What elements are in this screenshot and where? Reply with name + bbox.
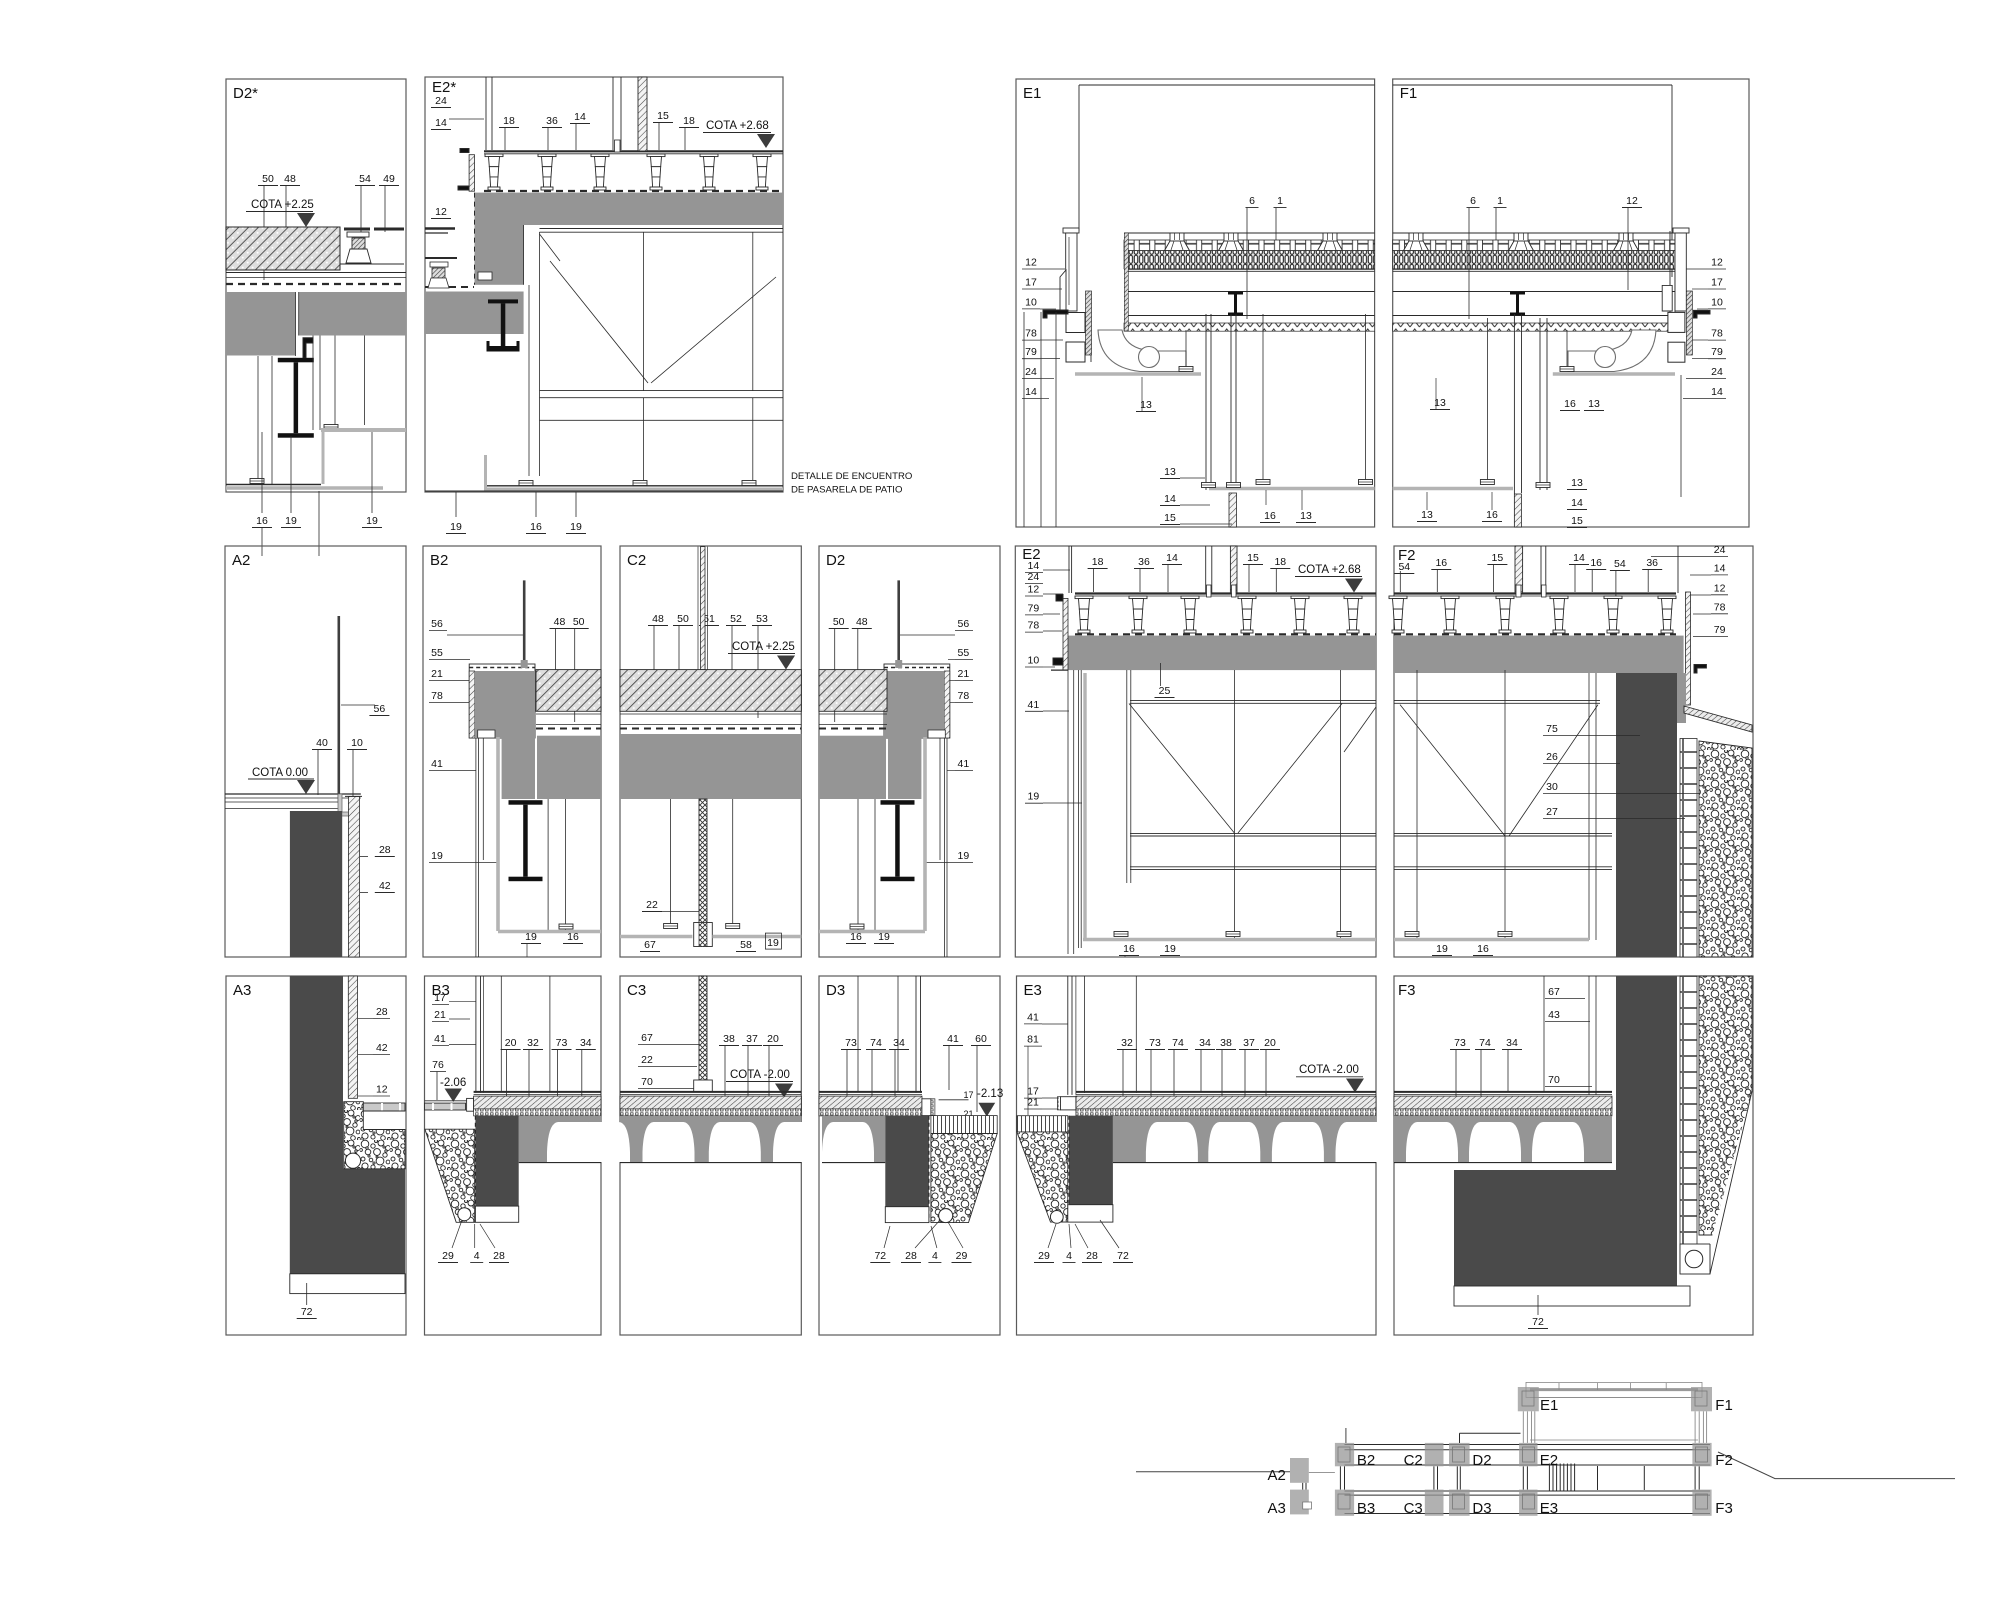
svg-text:36: 36 bbox=[546, 115, 558, 127]
svg-text:17: 17 bbox=[434, 992, 446, 1004]
svg-text:50: 50 bbox=[573, 616, 585, 628]
svg-text:COTA +2.68: COTA +2.68 bbox=[1298, 564, 1361, 576]
svg-text:19: 19 bbox=[366, 515, 378, 527]
svg-text:18: 18 bbox=[503, 115, 515, 127]
svg-text:37: 37 bbox=[746, 1033, 758, 1045]
svg-text:COTA +2.68: COTA +2.68 bbox=[706, 120, 769, 132]
svg-text:E1: E1 bbox=[1023, 85, 1041, 102]
svg-text:D2: D2 bbox=[826, 552, 845, 569]
svg-text:C3: C3 bbox=[627, 982, 646, 999]
svg-text:78: 78 bbox=[1714, 601, 1726, 613]
svg-text:10: 10 bbox=[1025, 296, 1037, 308]
svg-text:12: 12 bbox=[376, 1084, 388, 1096]
svg-text:37: 37 bbox=[1243, 1037, 1255, 1049]
svg-text:C2: C2 bbox=[627, 552, 646, 569]
svg-text:29: 29 bbox=[442, 1250, 454, 1262]
svg-text:29: 29 bbox=[1038, 1250, 1050, 1262]
svg-text:A2: A2 bbox=[232, 552, 250, 569]
svg-text:18: 18 bbox=[1274, 556, 1286, 568]
svg-text:E3: E3 bbox=[1540, 1500, 1558, 1517]
svg-text:54: 54 bbox=[1614, 558, 1626, 570]
svg-text:73: 73 bbox=[556, 1037, 568, 1049]
svg-text:41: 41 bbox=[1027, 1011, 1039, 1023]
svg-text:27: 27 bbox=[1546, 806, 1558, 818]
svg-text:24: 24 bbox=[1714, 544, 1726, 556]
svg-text:19: 19 bbox=[431, 850, 443, 862]
svg-text:67: 67 bbox=[1548, 986, 1560, 998]
svg-text:32: 32 bbox=[1121, 1037, 1133, 1049]
svg-text:36: 36 bbox=[1646, 557, 1658, 569]
svg-text:55: 55 bbox=[431, 647, 443, 659]
svg-text:10: 10 bbox=[351, 737, 363, 749]
svg-text:19: 19 bbox=[525, 931, 537, 943]
svg-text:B2: B2 bbox=[430, 552, 448, 569]
svg-text:75: 75 bbox=[1546, 723, 1558, 735]
svg-text:19: 19 bbox=[570, 521, 582, 533]
svg-text:36: 36 bbox=[1138, 556, 1150, 568]
svg-text:42: 42 bbox=[376, 1042, 388, 1054]
svg-text:21: 21 bbox=[434, 1009, 446, 1021]
svg-text:D2: D2 bbox=[1472, 1452, 1491, 1469]
svg-text:67: 67 bbox=[644, 939, 656, 951]
svg-text:29: 29 bbox=[956, 1250, 968, 1262]
svg-text:78: 78 bbox=[431, 690, 443, 702]
svg-text:32: 32 bbox=[527, 1037, 539, 1049]
svg-text:4: 4 bbox=[474, 1250, 480, 1262]
svg-text:38: 38 bbox=[1220, 1037, 1232, 1049]
svg-text:56: 56 bbox=[958, 618, 970, 630]
svg-text:13: 13 bbox=[1421, 509, 1433, 521]
svg-text:17: 17 bbox=[1711, 277, 1723, 289]
svg-text:12: 12 bbox=[1711, 257, 1723, 269]
svg-text:19: 19 bbox=[878, 931, 890, 943]
svg-text:-2.06: -2.06 bbox=[440, 1077, 466, 1089]
svg-text:-2.13: -2.13 bbox=[977, 1088, 1003, 1100]
svg-text:F3: F3 bbox=[1398, 982, 1416, 999]
svg-text:14: 14 bbox=[1571, 497, 1583, 509]
svg-text:15: 15 bbox=[1492, 552, 1504, 564]
svg-text:E1: E1 bbox=[1540, 1397, 1558, 1414]
svg-text:COTA +2.25: COTA +2.25 bbox=[732, 641, 795, 653]
svg-text:53: 53 bbox=[756, 613, 768, 625]
svg-text:52: 52 bbox=[730, 613, 742, 625]
svg-text:15: 15 bbox=[1571, 515, 1583, 527]
svg-text:38: 38 bbox=[723, 1033, 735, 1045]
svg-text:15: 15 bbox=[1247, 552, 1259, 564]
svg-text:78: 78 bbox=[1028, 620, 1040, 632]
svg-text:24: 24 bbox=[1711, 366, 1723, 378]
svg-text:34: 34 bbox=[580, 1037, 592, 1049]
svg-text:12: 12 bbox=[1626, 195, 1638, 207]
svg-text:4: 4 bbox=[1066, 1250, 1072, 1262]
svg-text:79: 79 bbox=[1714, 624, 1726, 636]
svg-text:19: 19 bbox=[1436, 943, 1448, 955]
svg-text:72: 72 bbox=[874, 1250, 886, 1262]
svg-text:42: 42 bbox=[379, 880, 391, 892]
svg-text:26: 26 bbox=[1546, 751, 1558, 763]
svg-text:E3: E3 bbox=[1024, 982, 1042, 999]
svg-text:56: 56 bbox=[431, 618, 443, 630]
svg-text:41: 41 bbox=[434, 1033, 446, 1045]
svg-text:DE PASARELA DE PATIO: DE PASARELA DE PATIO bbox=[791, 485, 902, 496]
svg-text:13: 13 bbox=[1571, 477, 1583, 489]
svg-text:E2*: E2* bbox=[432, 79, 456, 96]
svg-text:78: 78 bbox=[1025, 328, 1037, 340]
svg-text:16: 16 bbox=[256, 515, 268, 527]
svg-text:81: 81 bbox=[1027, 1034, 1039, 1046]
svg-text:14: 14 bbox=[1714, 562, 1726, 574]
svg-text:13: 13 bbox=[1300, 510, 1312, 522]
svg-text:C3: C3 bbox=[1404, 1500, 1423, 1517]
svg-text:16: 16 bbox=[1590, 557, 1602, 569]
svg-text:DETALLE DE ENCUENTRO: DETALLE DE ENCUENTRO bbox=[791, 471, 912, 482]
svg-text:24: 24 bbox=[435, 95, 447, 107]
svg-text:21: 21 bbox=[431, 668, 443, 680]
svg-text:28: 28 bbox=[905, 1250, 917, 1262]
svg-text:79: 79 bbox=[1025, 346, 1037, 358]
svg-text:19: 19 bbox=[285, 515, 297, 527]
svg-text:73: 73 bbox=[1149, 1037, 1161, 1049]
svg-text:60: 60 bbox=[975, 1033, 987, 1045]
svg-text:28: 28 bbox=[379, 844, 391, 856]
svg-text:20: 20 bbox=[767, 1033, 779, 1045]
svg-text:D3: D3 bbox=[1472, 1500, 1491, 1517]
svg-text:22: 22 bbox=[641, 1054, 653, 1066]
svg-text:79: 79 bbox=[1028, 602, 1040, 614]
svg-text:14: 14 bbox=[574, 111, 586, 123]
svg-text:55: 55 bbox=[958, 647, 970, 659]
svg-text:74: 74 bbox=[1172, 1037, 1184, 1049]
svg-text:24: 24 bbox=[1028, 571, 1040, 583]
svg-text:19: 19 bbox=[450, 521, 462, 533]
svg-text:D3: D3 bbox=[826, 982, 845, 999]
svg-text:14: 14 bbox=[1573, 552, 1585, 564]
svg-text:43: 43 bbox=[1548, 1009, 1560, 1021]
svg-text:COTA +2.25: COTA +2.25 bbox=[251, 199, 314, 211]
svg-text:48: 48 bbox=[856, 616, 868, 628]
svg-text:COTA -2.00: COTA -2.00 bbox=[730, 1069, 790, 1081]
svg-text:COTA -2.00: COTA -2.00 bbox=[1299, 1064, 1359, 1076]
svg-text:40: 40 bbox=[316, 737, 328, 749]
svg-text:21: 21 bbox=[1027, 1097, 1039, 1109]
svg-text:58: 58 bbox=[740, 939, 752, 951]
svg-text:50: 50 bbox=[677, 613, 689, 625]
svg-text:16: 16 bbox=[567, 931, 579, 943]
svg-text:16: 16 bbox=[1123, 943, 1135, 955]
svg-text:10: 10 bbox=[1028, 655, 1040, 667]
svg-text:34: 34 bbox=[893, 1037, 905, 1049]
svg-text:13: 13 bbox=[1164, 466, 1176, 478]
svg-text:56: 56 bbox=[374, 703, 386, 715]
svg-text:34: 34 bbox=[1199, 1037, 1211, 1049]
svg-text:16: 16 bbox=[850, 931, 862, 943]
svg-text:15: 15 bbox=[657, 110, 669, 122]
svg-text:19: 19 bbox=[767, 937, 779, 949]
svg-text:19: 19 bbox=[1164, 943, 1176, 955]
svg-text:F2: F2 bbox=[1715, 1452, 1733, 1469]
svg-text:A3: A3 bbox=[233, 982, 251, 999]
svg-text:F1: F1 bbox=[1715, 1397, 1733, 1414]
svg-text:41: 41 bbox=[431, 758, 443, 770]
svg-text:16: 16 bbox=[1486, 509, 1498, 521]
svg-text:78: 78 bbox=[1711, 328, 1723, 340]
svg-text:74: 74 bbox=[870, 1037, 882, 1049]
svg-text:70: 70 bbox=[1548, 1074, 1560, 1086]
svg-text:28: 28 bbox=[493, 1250, 505, 1262]
svg-text:17: 17 bbox=[964, 1090, 974, 1100]
svg-text:19: 19 bbox=[958, 850, 970, 862]
svg-text:B2: B2 bbox=[1357, 1452, 1375, 1469]
svg-text:12: 12 bbox=[1025, 257, 1037, 269]
svg-text:67: 67 bbox=[641, 1032, 653, 1044]
svg-text:16: 16 bbox=[1435, 557, 1447, 569]
svg-text:15: 15 bbox=[1164, 512, 1176, 524]
svg-text:50: 50 bbox=[833, 616, 845, 628]
svg-text:D2*: D2* bbox=[233, 85, 258, 102]
svg-text:14: 14 bbox=[1711, 386, 1723, 398]
svg-text:50: 50 bbox=[262, 173, 274, 185]
svg-text:10: 10 bbox=[1711, 296, 1723, 308]
svg-text:48: 48 bbox=[652, 613, 664, 625]
svg-text:48: 48 bbox=[554, 616, 566, 628]
svg-text:76: 76 bbox=[432, 1059, 444, 1071]
svg-text:C2: C2 bbox=[1404, 1452, 1423, 1469]
svg-text:48: 48 bbox=[284, 173, 296, 185]
svg-text:30: 30 bbox=[1546, 781, 1558, 793]
svg-text:28: 28 bbox=[376, 1006, 388, 1018]
svg-text:16: 16 bbox=[530, 521, 542, 533]
svg-text:14: 14 bbox=[1025, 386, 1037, 398]
svg-text:F1: F1 bbox=[1400, 85, 1418, 102]
svg-text:12: 12 bbox=[1714, 582, 1726, 594]
svg-text:72: 72 bbox=[301, 1306, 313, 1318]
svg-text:49: 49 bbox=[383, 173, 395, 185]
svg-text:B3: B3 bbox=[1357, 1500, 1375, 1517]
svg-text:20: 20 bbox=[505, 1037, 517, 1049]
svg-text:20: 20 bbox=[1264, 1037, 1276, 1049]
svg-text:74: 74 bbox=[1479, 1037, 1491, 1049]
svg-text:21: 21 bbox=[958, 668, 970, 680]
svg-text:16: 16 bbox=[1264, 510, 1276, 522]
svg-text:72: 72 bbox=[1532, 1316, 1544, 1328]
svg-text:12: 12 bbox=[1028, 584, 1040, 596]
svg-text:F3: F3 bbox=[1715, 1500, 1733, 1517]
svg-text:25: 25 bbox=[1159, 685, 1171, 697]
svg-text:78: 78 bbox=[958, 690, 970, 702]
svg-text:1: 1 bbox=[1277, 195, 1283, 207]
svg-text:13: 13 bbox=[1588, 398, 1600, 410]
svg-text:E2: E2 bbox=[1540, 1452, 1558, 1469]
svg-text:A2: A2 bbox=[1268, 1467, 1286, 1484]
svg-text:4: 4 bbox=[932, 1250, 938, 1262]
svg-text:19: 19 bbox=[1028, 791, 1040, 803]
svg-text:41: 41 bbox=[947, 1033, 959, 1045]
svg-text:COTA 0.00: COTA 0.00 bbox=[252, 767, 308, 779]
svg-text:14: 14 bbox=[1164, 493, 1176, 505]
svg-text:16: 16 bbox=[1477, 943, 1489, 955]
svg-text:70: 70 bbox=[641, 1076, 653, 1088]
svg-text:54: 54 bbox=[359, 173, 371, 185]
svg-text:41: 41 bbox=[958, 758, 970, 770]
svg-text:28: 28 bbox=[1086, 1250, 1098, 1262]
svg-text:A3: A3 bbox=[1268, 1500, 1286, 1517]
svg-text:41: 41 bbox=[1028, 699, 1040, 711]
svg-text:72: 72 bbox=[1117, 1250, 1129, 1262]
svg-text:34: 34 bbox=[1506, 1037, 1518, 1049]
svg-text:24: 24 bbox=[1025, 366, 1037, 378]
svg-text:79: 79 bbox=[1711, 346, 1723, 358]
svg-text:16: 16 bbox=[1564, 398, 1576, 410]
svg-text:1: 1 bbox=[1497, 195, 1503, 207]
svg-text:73: 73 bbox=[1454, 1037, 1466, 1049]
svg-text:14: 14 bbox=[1166, 552, 1178, 564]
svg-text:14: 14 bbox=[435, 117, 447, 129]
svg-text:17: 17 bbox=[1025, 277, 1037, 289]
svg-text:18: 18 bbox=[683, 115, 695, 127]
svg-text:6: 6 bbox=[1470, 195, 1476, 207]
svg-text:12: 12 bbox=[435, 206, 447, 218]
svg-text:6: 6 bbox=[1249, 195, 1255, 207]
svg-text:18: 18 bbox=[1092, 556, 1104, 568]
svg-text:73: 73 bbox=[845, 1037, 857, 1049]
svg-text:22: 22 bbox=[646, 899, 658, 911]
